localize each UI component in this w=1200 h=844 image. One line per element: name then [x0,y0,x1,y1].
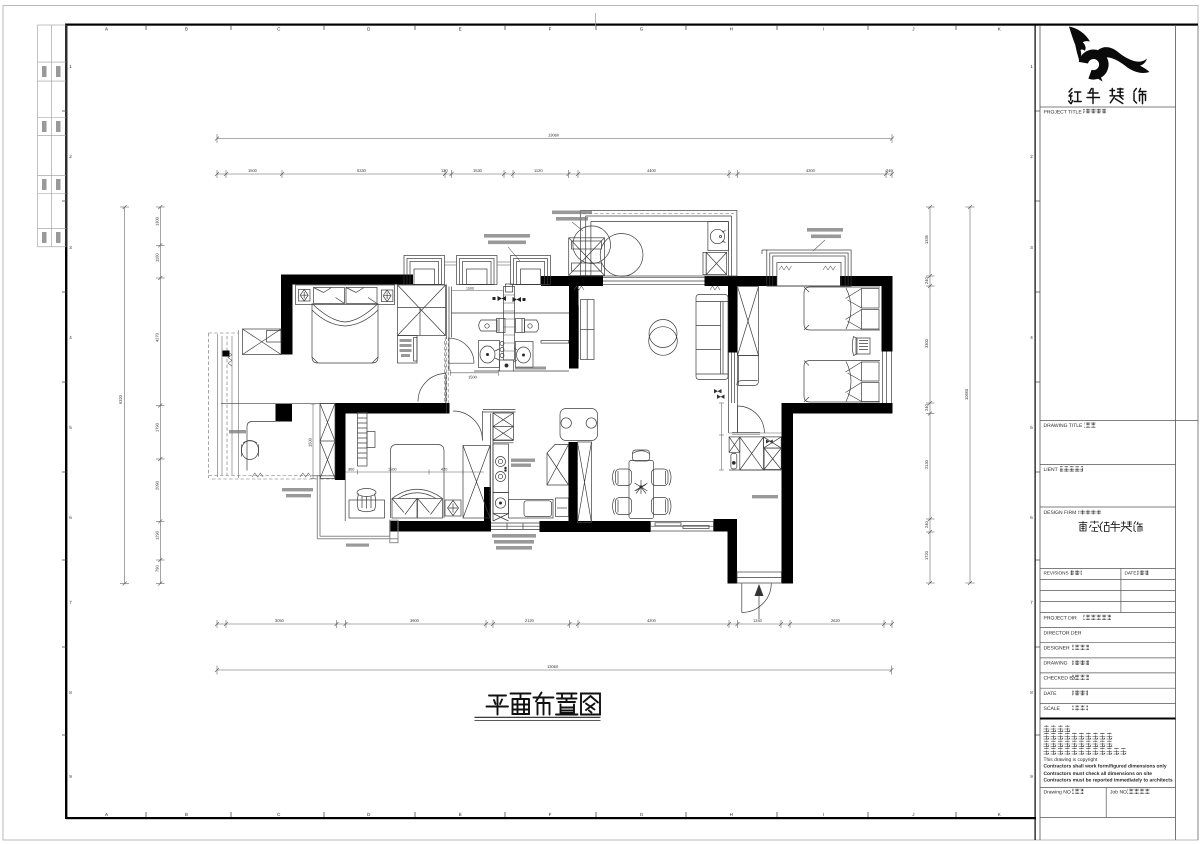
svg-text:LIENT: LIENT [1044,467,1058,473]
svg-text:This drawing is copyright: This drawing is copyright [1044,757,1098,763]
svg-text:1500: 1500 [308,437,313,447]
svg-text:Job NO: Job NO [1110,790,1127,796]
svg-text:240: 240 [924,277,929,284]
svg-text:K: K [998,812,1001,817]
svg-text:PROJECT DIR: PROJECT DIR [1044,616,1078,622]
svg-text:I: I [823,27,824,32]
svg-text:4200: 4200 [647,618,657,623]
svg-text:420: 420 [441,468,447,472]
svg-text:1335: 1335 [924,234,929,244]
svg-text:1100: 1100 [155,253,160,262]
svg-text:2090: 2090 [155,480,160,490]
svg-text:DESIGN FIRM: DESIGN FIRM [1044,510,1077,516]
svg-text:1120: 1120 [534,168,543,173]
svg-text:Drawing NO: Drawing NO [1044,790,1071,796]
svg-text:240: 240 [924,404,929,411]
svg-text:G: G [640,812,644,817]
svg-text:E: E [459,27,462,32]
svg-text:B: B [185,812,188,817]
svg-text:1240: 1240 [753,618,763,623]
svg-text:2120: 2120 [525,618,535,623]
svg-text:1500: 1500 [388,468,396,472]
svg-text:2620: 2620 [831,618,841,623]
svg-text:H: H [730,812,733,817]
svg-text:DATE: DATE [1125,571,1137,576]
svg-text:240: 240 [886,168,893,173]
svg-text:790: 790 [155,565,160,572]
svg-text:Contractors shall work form/fi: Contractors shall work form/figured dime… [1044,764,1167,770]
svg-text:1530: 1530 [473,168,483,173]
svg-text:DIRECTOR DER: DIRECTOR DER [1044,631,1082,637]
svg-text:300: 300 [348,468,354,472]
svg-text:SCALE: SCALE [1044,706,1061,712]
svg-text:1500: 1500 [248,168,258,173]
svg-text:120: 120 [441,168,448,173]
svg-text:Contractors must be reported i: Contractors must be reported immediately… [1044,778,1173,784]
svg-text:F: F [549,812,552,817]
svg-text:REVISIONS: REVISIONS [1044,571,1069,576]
svg-text:3900: 3900 [410,618,420,623]
svg-text:PROJECT TITLE: PROJECT TITLE [1044,110,1083,116]
svg-text:1300: 1300 [155,216,160,226]
svg-text:4400: 4400 [647,168,657,173]
svg-text:4270: 4270 [155,332,160,342]
svg-text:H: H [730,27,733,32]
svg-text:DESIGNER: DESIGNER [1044,646,1071,652]
svg-text:G: G [640,27,644,32]
svg-text:13060: 13060 [547,664,559,669]
svg-text:A: A [105,812,108,817]
svg-text:1500: 1500 [468,375,478,380]
svg-text:J: J [912,812,914,817]
svg-text:240: 240 [924,521,929,528]
svg-text:3050: 3050 [275,618,285,623]
svg-text:3300: 3300 [924,338,929,348]
svg-text:5330: 5330 [357,168,367,173]
svg-text:2130: 2130 [924,459,929,469]
svg-text:J: J [912,27,914,32]
svg-text:4300: 4300 [806,168,816,173]
svg-text:Contractors must check all dim: Contractors must check all dimensions on… [1044,771,1153,777]
svg-text:B: B [185,27,188,32]
svg-text:1290: 1290 [155,530,160,540]
svg-text:1790: 1790 [155,422,160,432]
svg-text:DRAWING: DRAWING [1044,661,1068,667]
svg-text:13060: 13060 [548,133,560,138]
svg-text:1500: 1500 [466,287,474,291]
svg-text:10660: 10660 [964,388,969,400]
svg-text:DATE: DATE [1044,691,1058,697]
svg-text:CHECKED BY: CHECKED BY [1044,676,1077,682]
svg-text:DRAWING TITLE: DRAWING TITLE [1044,423,1084,429]
svg-text:K: K [998,27,1001,32]
svg-text:F: F [549,27,552,32]
svg-text:6320: 6320 [118,394,123,404]
svg-text:I: I [823,812,824,817]
svg-text:1720: 1720 [924,550,929,560]
svg-text:E: E [459,812,462,817]
svg-text:A: A [105,27,108,32]
